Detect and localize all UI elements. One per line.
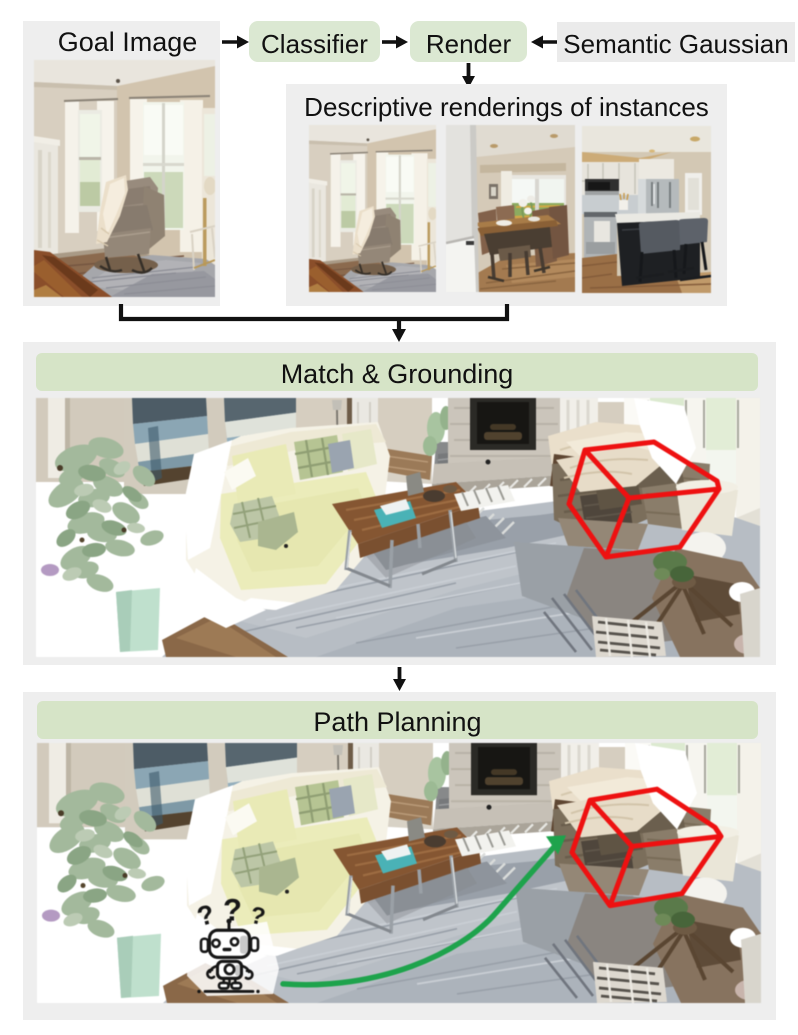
svg-text:?: ? xyxy=(223,893,242,928)
